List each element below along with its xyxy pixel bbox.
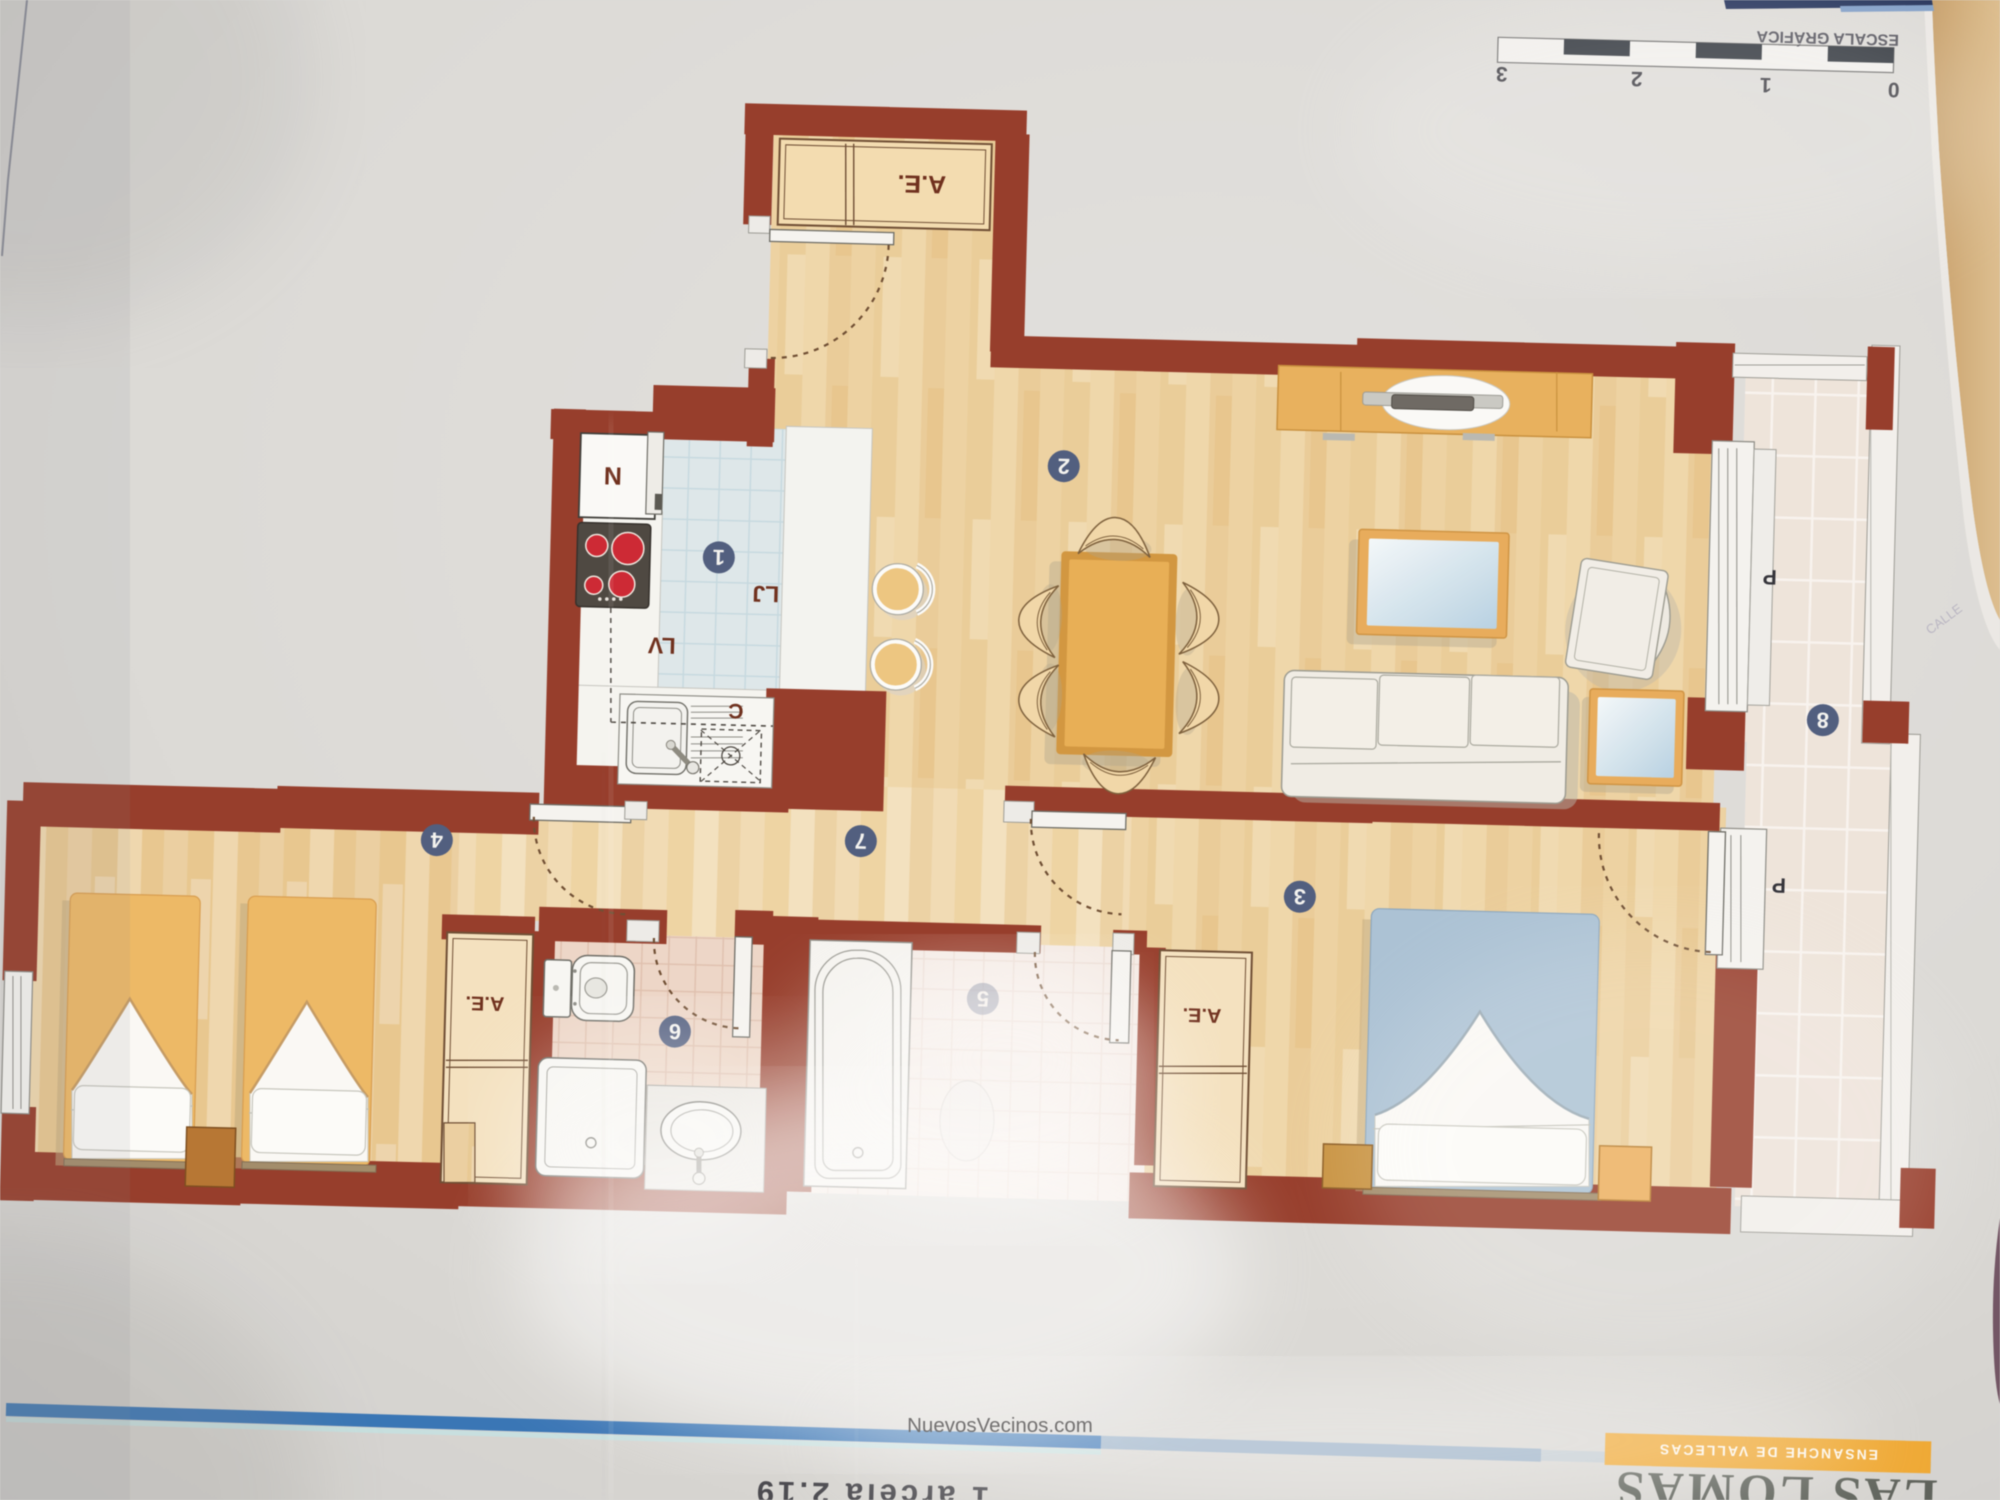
svg-text:NuevosVecinos.com: NuevosVecinos.com bbox=[907, 1414, 1093, 1437]
